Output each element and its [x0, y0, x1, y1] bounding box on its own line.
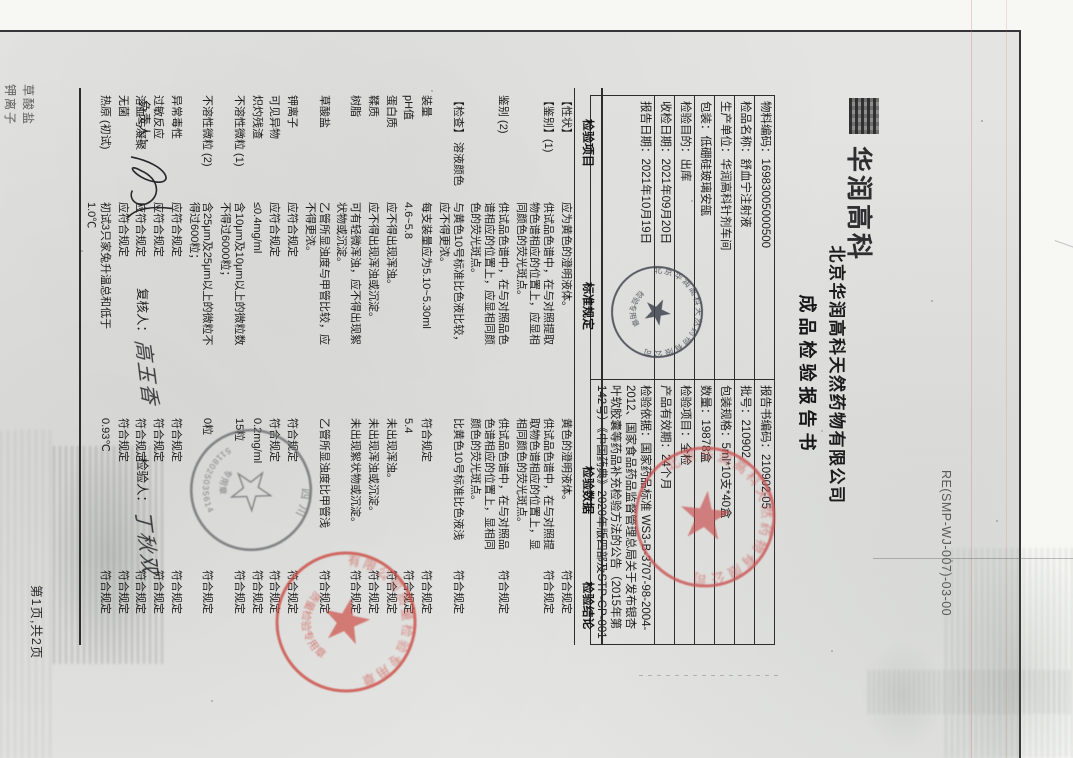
inspection-table-header: 检验项目 标准规定 检验数据 检验结论: [575, 88, 603, 645]
inspection-standard: 应符合规定: [283, 198, 301, 414]
inspection-data: 0.2mg/ml: [247, 414, 265, 566]
info-cell-right: 批号：210902: [735, 380, 755, 645]
inspection-standard: 应不得出现浑浊或沉淀。: [363, 198, 381, 414]
inspection-item: 草酸盐: [300, 88, 332, 198]
inspection-conclusion: 符合规定: [283, 566, 301, 645]
inspection-standard: 每支装量应为5.10~5.30ml: [417, 198, 435, 414]
scanner-streak-pink-2: [1006, 0, 1007, 758]
paper-crease-dashed: [638, 675, 778, 676]
inspection-item: 可见异物: [265, 88, 283, 198]
inspection-conclusion: 符合规定: [511, 566, 556, 645]
responsible-signature: [117, 146, 175, 226]
header-standard: 标准规定: [575, 198, 603, 414]
inspection-data: 符合规定: [265, 414, 283, 566]
inspection-item: 装量: [417, 88, 435, 198]
inspection-item: 蛋白质: [381, 88, 399, 198]
info-cell-left: 检品名称：舒血宁注射液: [735, 96, 755, 380]
scanned-page-viewport: RE(SMP-WJ-007)-03-00 华润高科 北京华润高科天然药物有限公司…: [0, 0, 1073, 758]
inspection-conclusion: 符合规定: [81, 566, 114, 645]
inspection-data: 比黄色10号标准比色液浅: [434, 414, 466, 566]
info-cell-left: 检验目的：出库: [675, 96, 695, 380]
inspection-standard: 应符合规定: [166, 198, 184, 414]
inspection-standard: 4.6~5.8: [399, 198, 417, 414]
document-code: RE(SMP-WJ-007)-03-00: [939, 470, 953, 616]
inspection-row: 装量 每支装量应为5.10~5.30ml 符合规定 符合规定: [417, 88, 435, 645]
inspection-data: 0粒: [184, 414, 216, 566]
inspection-conclusion: 符合规定: [381, 566, 399, 645]
responsible-label: 负责人：: [136, 100, 155, 150]
inspection-standard: 与黄色10号标准比色液比较，应不得更浓。: [434, 198, 466, 414]
inspection-row: pH值 4.6~5.8 5.4 符合规定: [399, 88, 417, 645]
inspection-data: 黄色的澄明液体。: [556, 414, 574, 566]
info-cell-right: 检验项目：全检: [675, 380, 695, 645]
inspection-row: 不溶性微粒 (1) 含10μm及10μm以上的微粒数不得过6000粒； 15粒 …: [216, 88, 248, 645]
inspection-standard: 应符合规定: [113, 198, 131, 414]
inspection-row: 鞣质 应不得出现浑浊或沉淀。 未出现浑浊或沉淀。 符合规定: [363, 88, 381, 645]
inspection-conclusion: 符合规定: [300, 566, 332, 645]
inspection-data: 符合规定: [166, 414, 184, 566]
inspection-conclusion: 符合规定: [363, 566, 381, 645]
inspection-conclusion: 符合规定: [417, 566, 435, 645]
inspection-standard: 应符合规定: [265, 198, 283, 414]
inspection-data: 15粒: [216, 414, 248, 566]
paper-crease-diagonal: [1055, 240, 1073, 309]
inspection-data: 供试品色谱中，在与对照提取物色谱相应的位置上，显相同颜色的荧光斑点。: [511, 414, 556, 566]
inspection-conclusion: 符合规定: [556, 566, 574, 645]
header-item: 检验项目: [575, 88, 603, 198]
info-cell-left: 生产单位：华润高科针剂车间: [715, 96, 735, 380]
inspection-row: 蛋白质 应不得出现浑浊。 未出现浑浊。 符合规定: [381, 88, 399, 645]
inspection-data: 符合规定: [113, 414, 131, 566]
inspection-conclusion: 符合规定: [399, 566, 417, 645]
info-table-row: 包装：低硼硅玻璃安瓿 数量：19878盒: [695, 96, 715, 645]
inspection-standard: 供试品色谱中，在与对照提取物色谱相应的位置上，应显相同颜色的荧光斑点。: [511, 198, 556, 414]
inspection-item: 鞣质: [363, 88, 381, 198]
info-cell-right: 包装规格：5ml*10支*40盒: [715, 380, 735, 645]
inspection-row: 不溶性微粒 (2) 含25μm及25μm以上的微粒不得过600粒； 0粒 符合规…: [184, 88, 216, 645]
company-name-title: 北京华润高科天然药物有限公司: [826, 30, 851, 720]
info-table-row: 检品名称：舒血宁注射液 批号：210902: [735, 96, 755, 645]
rotated-document: RE(SMP-WJ-007)-03-00 华润高科 北京华润高科天然药物有限公司…: [0, 0, 1073, 758]
report-title: 成品检验报告书: [795, 30, 821, 720]
inspection-conclusion: 符合规定: [149, 566, 167, 645]
inspection-item: 钾离子: [283, 88, 301, 198]
info-cell-right: 产品有效期：24个月: [655, 380, 675, 645]
inspection-row: 草酸盐 乙管所显浊度与甲管比较，应不得更浓。 乙管所显浊度比甲管浅 符合规定: [300, 88, 332, 645]
page-number: 第1页,共2页: [28, 585, 47, 659]
header-data: 检验数据: [575, 414, 603, 566]
paper-fold-line: [873, 558, 1073, 559]
inspection-conclusion: 符合规定: [332, 566, 364, 645]
inspection-data: 乙管所显浊度比甲管浅: [300, 414, 332, 566]
inspection-conclusion: 符合规定: [265, 566, 283, 645]
inspection-standard: ≤0.4mg/ml: [247, 198, 265, 414]
inspection-standard: 应为黄色的澄明液体。: [556, 198, 574, 414]
inspection-row: 炽灼残渣 ≤0.4mg/ml 0.2mg/ml 符合规定: [247, 88, 265, 645]
inspection-data: 未出现浑浊。: [381, 414, 399, 566]
info-cell-left: 物料编码：16983005000500: [755, 96, 775, 380]
inspection-conclusion: 符合规定: [113, 566, 131, 645]
inspection-standard: 应不得出现浑浊。: [381, 198, 399, 414]
inspection-standard: 含25μm及25μm以上的微粒不得过600粒；: [184, 198, 216, 414]
inspection-data: 符合规定: [283, 414, 301, 566]
inspection-item: 热原 (初试): [81, 88, 114, 198]
ghost-bleed-text-1: 草酸盐: [20, 84, 37, 126]
inspection-conclusion: 符合规定: [131, 566, 149, 645]
inspection-row: 鉴别 (2) 供试品色谱中，在与对照品色谱相应的位置上，应显相同颜色的荧光斑点。…: [466, 88, 511, 645]
inspection-conclusion: 符合规定: [466, 566, 511, 645]
inspection-standard: 可有轻微浑浊，应不得出现絮状物或沉淀。: [332, 198, 364, 414]
inspection-data: 未出现浑浊或沉淀。: [363, 414, 381, 566]
inspection-data: 符合规定: [417, 414, 435, 566]
info-table-row: 检验目的：出库 检验项目：全检: [675, 96, 695, 645]
inspection-row: 热原 (初试) 初试3只家兔升温总和低于1.0℃ 0.93℃ 符合规定: [81, 88, 114, 645]
info-cell-right: 数量：19878盒: [695, 380, 715, 645]
inspection-item: 不溶性微粒 (1): [216, 88, 248, 198]
info-cell-right: 报告书编码：210902-05: [755, 380, 775, 645]
scanner-streak-pink: [971, 0, 972, 758]
info-table-row: 物料编码：16983005000500 报告书编码：210902-05: [755, 96, 775, 645]
inspection-item: 【性状】: [556, 88, 574, 198]
inspection-item: 炽灼残渣: [247, 88, 265, 198]
inspection-standard: 乙管所显浊度与甲管比较，应不得更浓。: [300, 198, 332, 414]
info-table-row: 收检日期：2021年09月20日 产品有效期：24个月: [655, 96, 675, 645]
company-logo-icon: [849, 98, 879, 134]
inspection-conclusion: 符合规定: [184, 566, 216, 645]
inspection-row: 树脂 可有轻微浑浊，应不得出现絮状物或沉淀。 未出现絮状物或沉淀。 符合规定: [332, 88, 364, 645]
inspection-standard: 初试3只家兔升温总和低于1.0℃: [81, 198, 114, 414]
inspection-conclusion: 符合规定: [434, 566, 466, 645]
tester-label: 检验人：: [134, 458, 153, 508]
inspection-item: 不溶性微粒 (2): [184, 88, 216, 198]
reviewer-label: 复核人：: [134, 288, 153, 338]
inspection-data: 未出现絮状物或沉淀。: [332, 414, 364, 566]
inspection-row: 钾离子 应符合规定 符合规定 符合规定: [283, 88, 301, 645]
sample-info-table: 物料编码：16983005000500 报告书编码：210902-05 检品名称…: [590, 95, 775, 645]
inspection-item: 【检查】 溶液颜色: [434, 88, 466, 198]
inspection-item: 【鉴别】(1): [511, 88, 556, 198]
inspection-conclusion: 符合规定: [247, 566, 265, 645]
inspection-standard: 含10μm及10μm以上的微粒数不得过6000粒；: [216, 198, 248, 414]
inspection-item: 树脂: [332, 88, 364, 198]
inspection-row: 可见异物 应符合规定 符合规定 符合规定: [265, 88, 283, 645]
inspection-item: 鉴别 (2): [466, 88, 511, 198]
inspection-data: 供试品色谱中，在与对照品色谱相应的位置上，显相同颜色的荧光斑点。: [466, 414, 511, 566]
ghost-bleed-text-2: 钾离子: [2, 84, 19, 126]
inspection-item: pH值: [399, 88, 417, 198]
info-cell-left: 收检日期：2021年09月20日: [655, 96, 675, 380]
info-table-row: 生产单位：华润高科针剂车间 包装规格：5ml*10支*40盒: [715, 96, 735, 645]
inspection-data: 0.93℃: [81, 414, 114, 566]
inspection-conclusion: 符合规定: [216, 566, 248, 645]
inspection-data: 5.4: [399, 414, 417, 566]
inspection-row: 【性状】 应为黄色的澄明液体。 黄色的澄明液体。 符合规定: [556, 88, 574, 645]
header-conclusion: 检验结论: [575, 566, 603, 645]
inspection-row: 【鉴别】(1) 供试品色谱中，在与对照提取物色谱相应的位置上，应显相同颜色的荧光…: [511, 88, 556, 645]
info-cell-left: 包装：低硼硅玻璃安瓿: [695, 96, 715, 380]
inspection-row: 【检查】 溶液颜色 与黄色10号标准比色液比较，应不得更浓。 比黄色10号标准比…: [434, 88, 466, 645]
inspection-standard: 供试品色谱中，在与对照品色谱相应的位置上，应显相同颜色的荧光斑点。: [466, 198, 511, 414]
inspection-conclusion: 符合规定: [166, 566, 184, 645]
